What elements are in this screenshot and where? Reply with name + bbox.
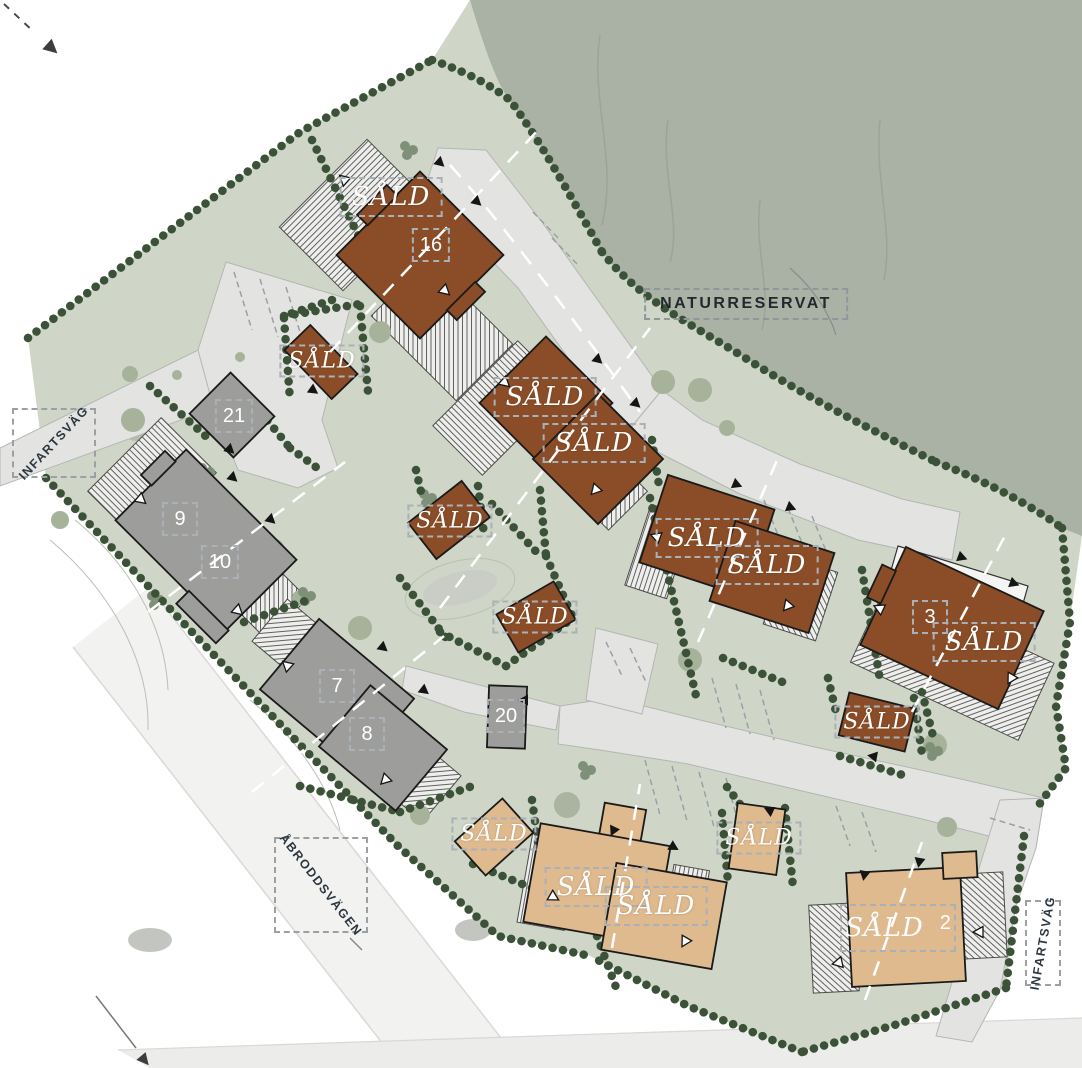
street-label-entry-east: INFARTSVÄG <box>1025 900 1061 986</box>
site-plan: SÅLD 16 SÅLD 21 9 10 SÅLD SÅLD SÅLD SÅLD… <box>0 0 1082 1068</box>
plot-8-number[interactable]: 8 <box>349 717 385 751</box>
plot-duplex-mid-upper-sold-label[interactable]: SÅLD <box>494 377 597 417</box>
plot-sold-d-label[interactable]: SÅLD <box>834 706 919 739</box>
plot-2-label-box[interactable]: SÅLD 2 <box>840 904 956 952</box>
plot-duplex-right-lower-sold-label[interactable]: SÅLD <box>716 545 819 585</box>
street-label-entry-west: INFARTSVÄG <box>12 408 96 478</box>
plot-10-number[interactable]: 10 <box>201 545 239 579</box>
plot-21-number[interactable]: 21 <box>215 399 253 433</box>
plot-sold-w-label[interactable]: SÅLD <box>451 818 536 851</box>
plot-2-number: 2 <box>940 912 951 935</box>
plot-duplex-mid-lower-sold-label[interactable]: SÅLD <box>543 423 646 463</box>
plot-7-number[interactable]: 7 <box>319 669 355 703</box>
plot-sold-a-label[interactable]: SÅLD <box>279 345 364 378</box>
street-label-abroddsvagen: ÅBRODDSVÄGEN <box>274 837 368 933</box>
plot-3-sold-label[interactable]: SÅLD <box>933 622 1036 662</box>
plot-16-sold-label[interactable]: SÅLD <box>340 177 443 217</box>
nature-reserve-label: NATURRESERVAT <box>644 288 848 320</box>
plot-20-number[interactable]: 20 <box>487 699 525 733</box>
plot-sold-b-label[interactable]: SÅLD <box>407 505 492 538</box>
plot-16-number[interactable]: 16 <box>412 228 450 262</box>
plot-9-number[interactable]: 9 <box>162 502 198 536</box>
plot-2-sold-label: SÅLD <box>845 913 924 943</box>
plot-duplex-beige-lower-sold-label[interactable]: SÅLD <box>605 886 708 926</box>
plot-sold-c-label[interactable]: SÅLD <box>492 601 577 634</box>
plot-sold-e-label[interactable]: SÅLD <box>716 822 801 855</box>
